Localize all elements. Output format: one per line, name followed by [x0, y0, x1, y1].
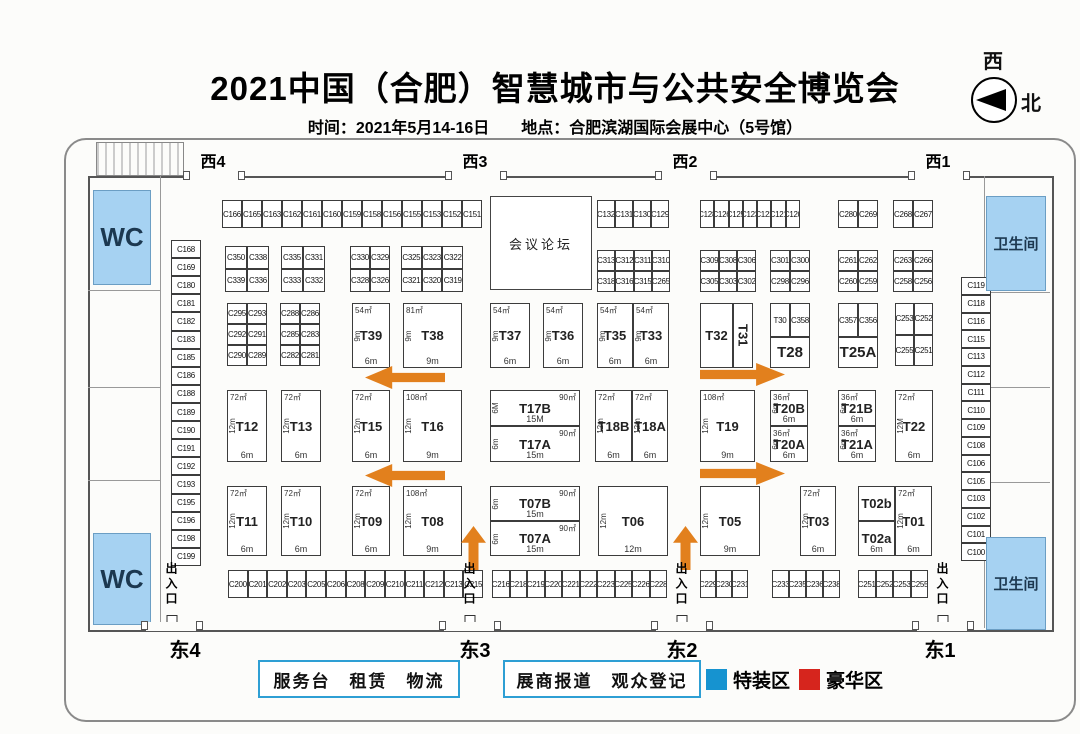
booth-side-dimension: 12m [353, 418, 362, 434]
booth-bottom-dimension: 6m [353, 544, 389, 554]
booth-cell: C310 [652, 250, 670, 271]
booth-cell: C236 [806, 570, 823, 598]
booth-cell: C162 [282, 200, 302, 228]
booth-label: T13 [290, 419, 312, 434]
booth-cell: C320 [422, 269, 443, 292]
booth-cell: C298 [770, 271, 790, 292]
booth-cell: C113 [961, 348, 991, 366]
door-post [908, 171, 915, 180]
booth-side-dimension: 9m [491, 330, 500, 341]
booth-cell: C292 [227, 324, 247, 345]
wall-opening [913, 172, 963, 181]
booth-cell: C218 [510, 570, 528, 598]
booth-cell: C105 [961, 472, 991, 490]
restroom-toilet-area: 卫生间 [986, 537, 1046, 630]
booth-bottom-dimension: 9m [701, 544, 759, 554]
booth-area-label: 36㎡ [773, 428, 790, 439]
compass-dial [971, 77, 1017, 123]
booth-bottom-dimension: 9m [404, 356, 461, 366]
booth-T25A: T25A [838, 337, 878, 368]
corridor-wall [160, 176, 161, 628]
booth-bottom-dimension: 6m [839, 414, 875, 424]
booth-T10: T1072㎡12m6m [281, 486, 321, 556]
stairs-area [96, 142, 184, 176]
compass-west-label: 西 [983, 45, 1003, 74]
wall-opening [656, 622, 706, 631]
booth-cell: C255 [911, 570, 929, 598]
booth-T39: T3954㎡9m6m [352, 303, 390, 368]
booth-cell: C110 [961, 401, 991, 419]
page-subtitle: 时间：2021年5月14-16日 地点：合肥滨湖国际会展中心（5号馆） [30, 114, 1080, 138]
booth-cell: C326 [370, 269, 390, 292]
booth-cell: C288 [280, 303, 300, 324]
door-post [963, 171, 970, 180]
booth-cell: C161 [302, 200, 322, 228]
booth-cell: C190 [171, 421, 201, 439]
booth-cell: C311 [634, 250, 652, 271]
conference-forum-area: 会议论坛 [490, 196, 592, 290]
booth-T28: T28 [770, 337, 810, 368]
booth-bottom-dimension: 6m [598, 356, 632, 366]
door-post [439, 621, 446, 630]
booth-cell: C205 [306, 570, 326, 598]
booth-side-dimension: 12m [282, 418, 291, 434]
booth-label: T08 [421, 514, 443, 529]
booth-label: T36 [552, 328, 574, 343]
booth-cell: C116 [961, 313, 991, 331]
booth-cell: C295 [227, 303, 247, 324]
booth-cell: C312 [615, 250, 633, 271]
booth-side-dimension: 12m [701, 513, 710, 529]
booth-T35: T3554㎡9m6m [597, 303, 633, 368]
booth-T17B: T17B90㎡6M15M [490, 390, 580, 426]
booth-bottom-dimension: 6m [634, 356, 668, 366]
booth-cell: C259 [858, 271, 878, 292]
booth-bottom-dimension: 12m [599, 544, 667, 554]
booth-area-label: 72㎡ [355, 488, 372, 499]
booth-T09: T0972㎡12m6m [352, 486, 390, 556]
booth-T36: T3654㎡9m6m [543, 303, 583, 368]
wall-opening [450, 172, 500, 181]
room-divider [88, 480, 160, 481]
gate-西4: 西4 [201, 148, 226, 172]
booth-cell: C335 [281, 246, 303, 269]
booth-cell: C198 [171, 530, 201, 548]
booth-cell: C212 [424, 570, 444, 598]
booth-cell: C103 [961, 490, 991, 508]
booth-cell: C233 [772, 570, 789, 598]
restroom-wc-area: WC [93, 190, 151, 285]
booth-bottom-dimension: 6m [771, 450, 807, 460]
booth-bottom-dimension: 15m [491, 544, 579, 554]
booth-cell: C321 [401, 269, 422, 292]
booth-cell: C206 [326, 570, 346, 598]
booth-cell: C291 [247, 324, 267, 345]
door-post [445, 171, 452, 180]
door-post [196, 621, 203, 630]
wall-opening [444, 622, 494, 631]
booth-area-label: 72㎡ [230, 488, 247, 499]
booth-cell: C328 [350, 269, 370, 292]
door-post [967, 621, 974, 630]
booth-side-dimension: 6m [839, 402, 848, 413]
booth-cell: C159 [342, 200, 362, 228]
booth-cell: C209 [365, 570, 385, 598]
wall-opening [146, 622, 196, 631]
booth-side-dimension: 12m [282, 513, 291, 529]
booth-cell: C211 [405, 570, 425, 598]
booth-T19: T19108㎡12m9m [700, 390, 755, 462]
booth-side-dimension: 6m [839, 438, 848, 449]
door-post [141, 621, 148, 630]
booth-cell: C283 [300, 324, 320, 345]
booth-cell: C263 [893, 250, 913, 271]
booth-area-label: 81㎡ [406, 305, 423, 316]
booth-cell: C118 [961, 295, 991, 313]
booth-T20B: T20B36㎡6m6m [770, 390, 808, 426]
booth-cell: C261 [838, 250, 858, 271]
booth-label: T33 [640, 328, 662, 343]
room-divider [984, 292, 1050, 293]
booth-area-label: 72㎡ [284, 488, 301, 499]
booth-cell: C290 [227, 345, 247, 366]
booth-T17A: T17A90㎡6m15m [490, 426, 580, 462]
booth-bottom-dimension: 9m [701, 450, 754, 460]
booth-cell: C330 [350, 246, 370, 269]
door-post [710, 171, 717, 180]
booth-cell: C151 [462, 200, 482, 228]
booth-side-dimension: 6m [771, 402, 780, 413]
booth-cell: C219 [527, 570, 545, 598]
booth-bottom-dimension: 6m [633, 450, 667, 460]
booth-cell: C188 [171, 385, 201, 403]
booth-area-label: 54㎡ [600, 305, 617, 316]
booth-label: T31 [736, 324, 751, 346]
booth-T15: T1572㎡12m6m [352, 390, 390, 462]
booth-cell: C128 [700, 200, 714, 228]
entrance-label: 出入口 [934, 562, 951, 608]
booth-T12: T1272㎡12m6m [227, 390, 267, 462]
booth-side-dimension: 12m [633, 418, 642, 434]
compass-north-label: 北 [1021, 87, 1041, 116]
booth-cell: C238 [823, 570, 840, 598]
booth-label: T03 [807, 514, 829, 529]
booth-side-dimension: 12m [599, 513, 608, 529]
expo-floor-plan: 2021中国（合肥）智慧城市与公共安全博览会 时间：2021年5月14-16日 … [0, 0, 1080, 734]
booth-cell: C115 [961, 330, 991, 348]
booth-area-label: 36㎡ [773, 392, 790, 403]
booth-label: T19 [716, 419, 738, 434]
booth-cell: C315 [634, 271, 652, 292]
booth-cell: C252 [914, 303, 933, 335]
booth-cell: C112 [961, 366, 991, 384]
booth-cell: C262 [858, 250, 878, 271]
booth-bottom-dimension: 6m [859, 544, 894, 554]
booth-label: T28 [777, 344, 803, 361]
booth-label: T39 [360, 328, 382, 343]
booth-cell: C166 [222, 200, 242, 228]
booth-T21A: T21A36㎡6m6m [838, 426, 876, 462]
booth-T08: T08108㎡12m9m [403, 486, 462, 556]
booth-cell: C331 [303, 246, 325, 269]
booth-area-label: 54㎡ [636, 305, 653, 316]
booth-label: T09 [360, 514, 382, 529]
booth-cell: C158 [362, 200, 382, 228]
booth-cell: C121 [771, 200, 785, 228]
booth-cell: C230 [716, 570, 732, 598]
booth-side-dimension: 9m [634, 330, 643, 341]
booth-label: T02b [861, 496, 891, 511]
booth-cell: C332 [303, 269, 325, 292]
room-divider [88, 387, 160, 388]
booth-cell: C191 [171, 439, 201, 457]
booth-cell: T30 [770, 303, 790, 337]
door-post [651, 621, 658, 630]
booth-cell: C267 [913, 200, 933, 228]
booth-area-label: 72㎡ [284, 392, 301, 403]
booth-cell: C282 [280, 345, 300, 366]
booth-side-dimension: 9m [404, 330, 413, 341]
booth-bottom-dimension: 6m [771, 414, 807, 424]
booth-side-dimension: 12m [701, 418, 710, 434]
booth-cell: C296 [790, 271, 810, 292]
booth-cell: C281 [300, 345, 320, 366]
booth-cell: C132 [597, 200, 615, 228]
booth-label: T06 [622, 514, 644, 529]
booth-label: T05 [719, 514, 741, 529]
gate-东1: 东1 [924, 634, 955, 663]
booth-cell: C221 [562, 570, 580, 598]
booth-label: T16 [421, 419, 443, 434]
gate-西3: 西3 [463, 148, 488, 172]
booth-bottom-dimension: 6m [353, 450, 389, 460]
service-desk-box: 服务台 租赁 物流 [258, 660, 460, 698]
booth-T18B: T18B72㎡12m6m [595, 390, 632, 462]
booth-cell: C201 [248, 570, 268, 598]
booth-cell: C313 [597, 250, 615, 271]
booth-cell: C193 [171, 475, 201, 493]
booth-bottom-dimension: 9m [404, 450, 461, 460]
booth-cell: C163 [262, 200, 282, 228]
booth-cell: C300 [790, 250, 810, 271]
booth-area-label: 108㎡ [703, 392, 724, 403]
booth-cell: C186 [171, 367, 201, 385]
booth-cell: C306 [737, 250, 756, 271]
booth-cell: C329 [370, 246, 390, 269]
booth-area-label: 72㎡ [803, 488, 820, 499]
booth-cell: C255 [895, 335, 914, 367]
booth-T03: T0372㎡12m6m [800, 486, 836, 556]
booth-side-dimension: 12m [353, 513, 362, 529]
booth-T13: T1372㎡12m6m [281, 390, 321, 462]
restroom-toilet-area: 卫生间 [986, 196, 1046, 291]
booth-cell: C152 [442, 200, 462, 228]
booth-cell: C189 [171, 403, 201, 421]
booth-bottom-dimension: 6m [282, 450, 320, 460]
compass: 西 北 [965, 45, 1077, 131]
booth-area-label: 90㎡ [559, 523, 576, 534]
booth-cell: C265 [652, 271, 670, 292]
booth-side-dimension: 6m [491, 498, 500, 509]
booth-bottom-dimension: 15m [491, 450, 579, 460]
gate-西2: 西2 [673, 148, 698, 172]
booth-area-label: 90㎡ [559, 392, 576, 403]
booth-area-label: 72㎡ [355, 392, 372, 403]
booth-T07B: T07B90㎡6m15m [490, 486, 580, 521]
booth-T02a: T02a6m [858, 521, 895, 556]
booth-area-label: 72㎡ [635, 392, 652, 403]
booth-cell: C303 [719, 271, 738, 292]
special-zone-label: 特装区 [733, 666, 790, 693]
booth-bottom-dimension: 6m [228, 450, 266, 460]
booth-cell: C131 [615, 200, 633, 228]
booth-label: T25A [840, 344, 877, 361]
booth-cell: C285 [280, 324, 300, 345]
booth-cell: C182 [171, 312, 201, 330]
booth-area-label: 36㎡ [841, 428, 858, 439]
deluxe-zone-label: 豪华区 [826, 666, 883, 693]
room-divider [984, 482, 1050, 483]
booth-T01: T0172㎡12m6m [895, 486, 932, 556]
booth-cell: C301 [770, 250, 790, 271]
booth-side-dimension: 9m [353, 330, 362, 341]
booth-cell: C168 [171, 240, 201, 258]
booth-side-dimension: 6m [491, 438, 500, 449]
booth-bottom-dimension: 6m [839, 450, 875, 460]
booth-area-label: 72㎡ [898, 392, 915, 403]
booth-label: T32 [705, 328, 727, 343]
booth-label: T38 [421, 328, 443, 343]
booth-side-dimension: 9m [598, 330, 607, 341]
booth-label: T37 [499, 328, 521, 343]
booth-cell: C253 [893, 570, 911, 598]
booth-label: T10 [290, 514, 312, 529]
gate-东3: 东3 [459, 634, 490, 663]
booth-cell: C153 [422, 200, 442, 228]
booth-side-dimension: 12M [896, 418, 905, 434]
booth-cell: C185 [171, 349, 201, 367]
booth-cell: C120 [786, 200, 800, 228]
booth-cell: C251 [914, 335, 933, 367]
booth-cell: C356 [858, 303, 878, 337]
booth-cell: C229 [700, 570, 716, 598]
booth-cell: C251 [858, 570, 876, 598]
door-post [500, 171, 507, 180]
booth-bottom-dimension: 9m [404, 544, 461, 554]
booth-side-dimension: 6m [491, 533, 500, 544]
booth-cell: C268 [893, 200, 913, 228]
booth-cell: C223 [597, 570, 615, 598]
booth-cell: C308 [719, 250, 738, 271]
room-divider [88, 290, 160, 291]
booth-cell: C358 [790, 303, 810, 337]
booth-cell: C231 [732, 570, 748, 598]
booth-cell: C180 [171, 276, 201, 294]
booth-cell: C305 [700, 271, 719, 292]
booth-side-dimension: 12m [228, 418, 237, 434]
booth-cell: C216 [492, 570, 510, 598]
booth-T37: T3754㎡9m6m [490, 303, 530, 368]
gate-西1: 西1 [926, 148, 951, 172]
door-post [912, 621, 919, 630]
booth-cell: C350 [225, 246, 247, 269]
booth-area-label: 108㎡ [406, 392, 427, 403]
booth-label: T22 [903, 419, 925, 434]
booth-T21B: T21B36㎡6m6m [838, 390, 876, 426]
booth-side-dimension: 12m [896, 513, 905, 529]
booth-cell: C155 [402, 200, 422, 228]
booth-area-label: 54㎡ [355, 305, 372, 316]
booth-bottom-dimension: 15m [491, 509, 579, 519]
booth-cell: C123 [743, 200, 757, 228]
deluxe-zone-swatch [799, 669, 820, 690]
booth-T05: T0512m9m [700, 486, 760, 556]
booth-T33: T3354㎡9m6m [633, 303, 669, 368]
booth-bottom-dimension: 6m [596, 450, 631, 460]
booth-cell: C129 [651, 200, 669, 228]
booth-cell: C333 [281, 269, 303, 292]
booth-cell: C316 [615, 271, 633, 292]
door-post [494, 621, 501, 630]
special-zone-swatch [706, 669, 727, 690]
booth-cell: C269 [858, 200, 878, 228]
booth-T38: T3881㎡9m9m [403, 303, 462, 368]
gate-东2: 东2 [666, 634, 697, 663]
door-post [238, 171, 245, 180]
door-post [706, 621, 713, 630]
booth-T31: T31 [733, 303, 753, 368]
booth-area-label: 72㎡ [230, 392, 247, 403]
booth-cell: C325 [401, 246, 422, 269]
booth-T18A: T18A72㎡12m6m [632, 390, 668, 462]
booth-cell: C293 [247, 303, 267, 324]
booth-side-dimension: 12m [801, 513, 810, 529]
booth-area-label: 54㎡ [493, 305, 510, 316]
booth-cell: C289 [247, 345, 267, 366]
booth-cell: C318 [597, 271, 615, 292]
booth-bottom-dimension: 6m [491, 356, 529, 366]
booth-T22: T2272㎡12M6m [895, 390, 933, 462]
booth-cell: C220 [545, 570, 563, 598]
booth-cell: C336 [247, 269, 269, 292]
booth-side-dimension: 6M [491, 402, 500, 413]
booth-cell: C183 [171, 331, 201, 349]
booth-cell: C109 [961, 419, 991, 437]
booth-T32: T32 [700, 303, 733, 368]
booth-cell: C309 [700, 250, 719, 271]
booth-cell: C323 [422, 246, 443, 269]
booth-cell: C196 [171, 512, 201, 530]
booth-area-label: 36㎡ [841, 392, 858, 403]
booth-cell: C319 [442, 269, 463, 292]
booth-area-label: 54㎡ [546, 305, 563, 316]
booth-cell: C258 [893, 271, 913, 292]
booth-T20A: T20A36㎡6m6m [770, 426, 808, 462]
restroom-wc-area: WC [93, 533, 151, 625]
booth-cell: C126 [714, 200, 728, 228]
booth-cell: C192 [171, 457, 201, 475]
booth-cell: C286 [300, 303, 320, 324]
booth-cell: C266 [913, 250, 933, 271]
room-divider [984, 387, 1050, 388]
booth-cell: C208 [346, 570, 366, 598]
booth-bottom-dimension: 15M [491, 414, 579, 424]
door-post [183, 171, 190, 180]
booth-cell: C225 [615, 570, 633, 598]
booth-cell: C357 [838, 303, 858, 337]
booth-area-label: 72㎡ [598, 392, 615, 403]
booth-cell: C130 [633, 200, 651, 228]
